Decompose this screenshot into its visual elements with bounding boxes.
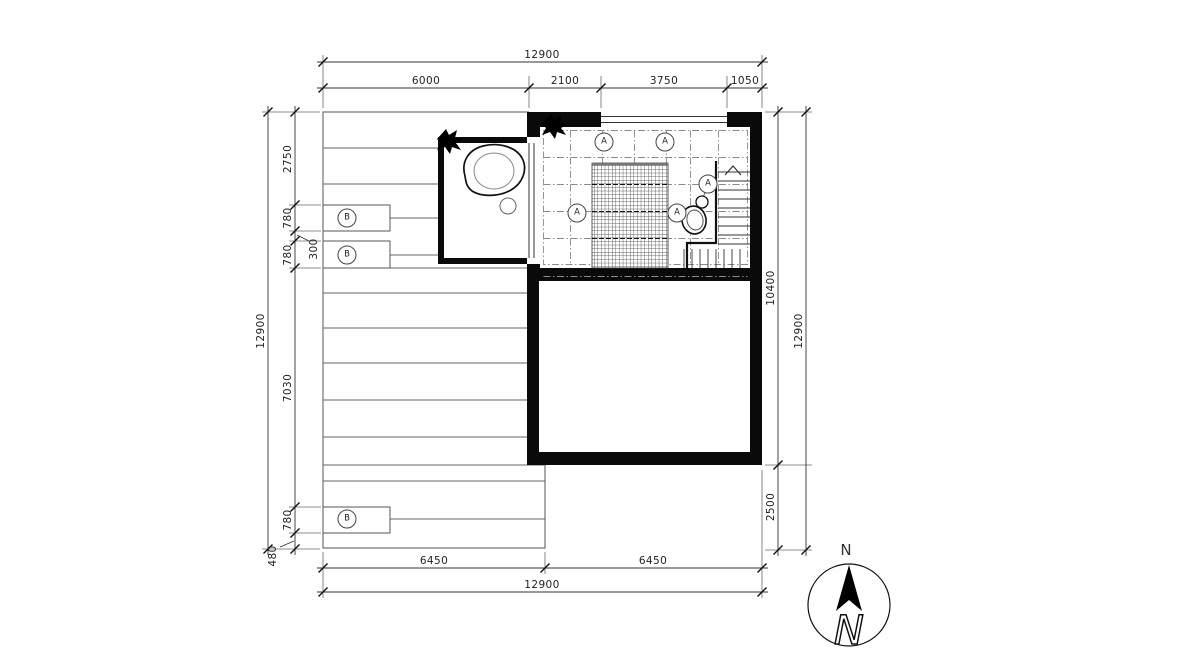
dim-top-seg-3: 3750 [650, 75, 678, 87]
dim-left-seg-4: 7030 [282, 374, 294, 402]
deck-tag-letter: B [344, 251, 350, 260]
floor-plan-canvas: N 12900 6000 2100 3750 1050 12900 2750 7… [0, 0, 1180, 664]
north-letter: N [840, 541, 851, 559]
dim-bottom-total: 12900 [524, 579, 559, 591]
deck-tag: B [338, 246, 357, 265]
north-compass: N [808, 564, 890, 654]
dim-top-seg-2: 2100 [551, 75, 579, 87]
dim-left-seg-5: 780 [282, 509, 294, 530]
dim-left-total: 12900 [255, 313, 267, 348]
dim-right-seg-2: 2500 [765, 493, 777, 521]
ceiling-tag-letter: A [705, 180, 711, 189]
leader-480 [280, 541, 294, 547]
ceiling-tag-letter: A [601, 138, 607, 147]
deck-tag-letter: B [344, 214, 350, 223]
dim-left-seg-300: 300 [308, 238, 320, 259]
dim-left-seg-2: 780 [282, 207, 294, 228]
stair-treads-lower [684, 249, 740, 268]
dim-left-seg-480: 480 [267, 545, 279, 566]
lower-room-bottom-wall [527, 452, 762, 465]
dim-left-seg-1: 2750 [282, 145, 294, 173]
dividing-wall [527, 268, 762, 281]
dim-top-seg-1: 6000 [412, 75, 440, 87]
stair-up-arrow [725, 166, 741, 175]
floor-plan-drawing: N [0, 0, 1180, 664]
ceiling-tag: A [595, 133, 614, 152]
dim-top-total: 12900 [524, 49, 559, 61]
ceiling-tag-letter: A [574, 209, 580, 218]
hatched-void [592, 163, 668, 268]
dim-bottom-seg-1: 6450 [420, 555, 448, 567]
bathroom-floor [438, 137, 540, 264]
stair-treads-upper [718, 172, 750, 244]
ceiling-tag: A [668, 204, 687, 223]
window-glazing-lines [601, 117, 727, 123]
lower-room-left-wall [527, 268, 539, 465]
ceiling-tag-letter: A [662, 138, 668, 147]
ceiling-tag: A [568, 204, 587, 223]
ceiling-tag: A [656, 133, 675, 152]
dim-top-seg-4: 1050 [731, 75, 759, 87]
compass-n-glyph: N [834, 608, 864, 654]
dim-left-seg-3: 780 [282, 244, 294, 265]
deck-tag-letter: B [344, 515, 350, 524]
dim-right-total: 12900 [793, 313, 805, 348]
ceiling-tag: A [699, 175, 718, 194]
bathroom [438, 137, 540, 264]
dim-bottom-seg-2: 6450 [639, 555, 667, 567]
planter-boxes [323, 205, 390, 533]
right-wall [750, 112, 762, 465]
deck-tag: B [338, 510, 357, 529]
dim-right-seg-1: 10400 [765, 270, 777, 305]
compass-needle [836, 565, 862, 611]
deck-tag: B [338, 209, 357, 228]
ceiling-tag-letter: A [674, 209, 680, 218]
